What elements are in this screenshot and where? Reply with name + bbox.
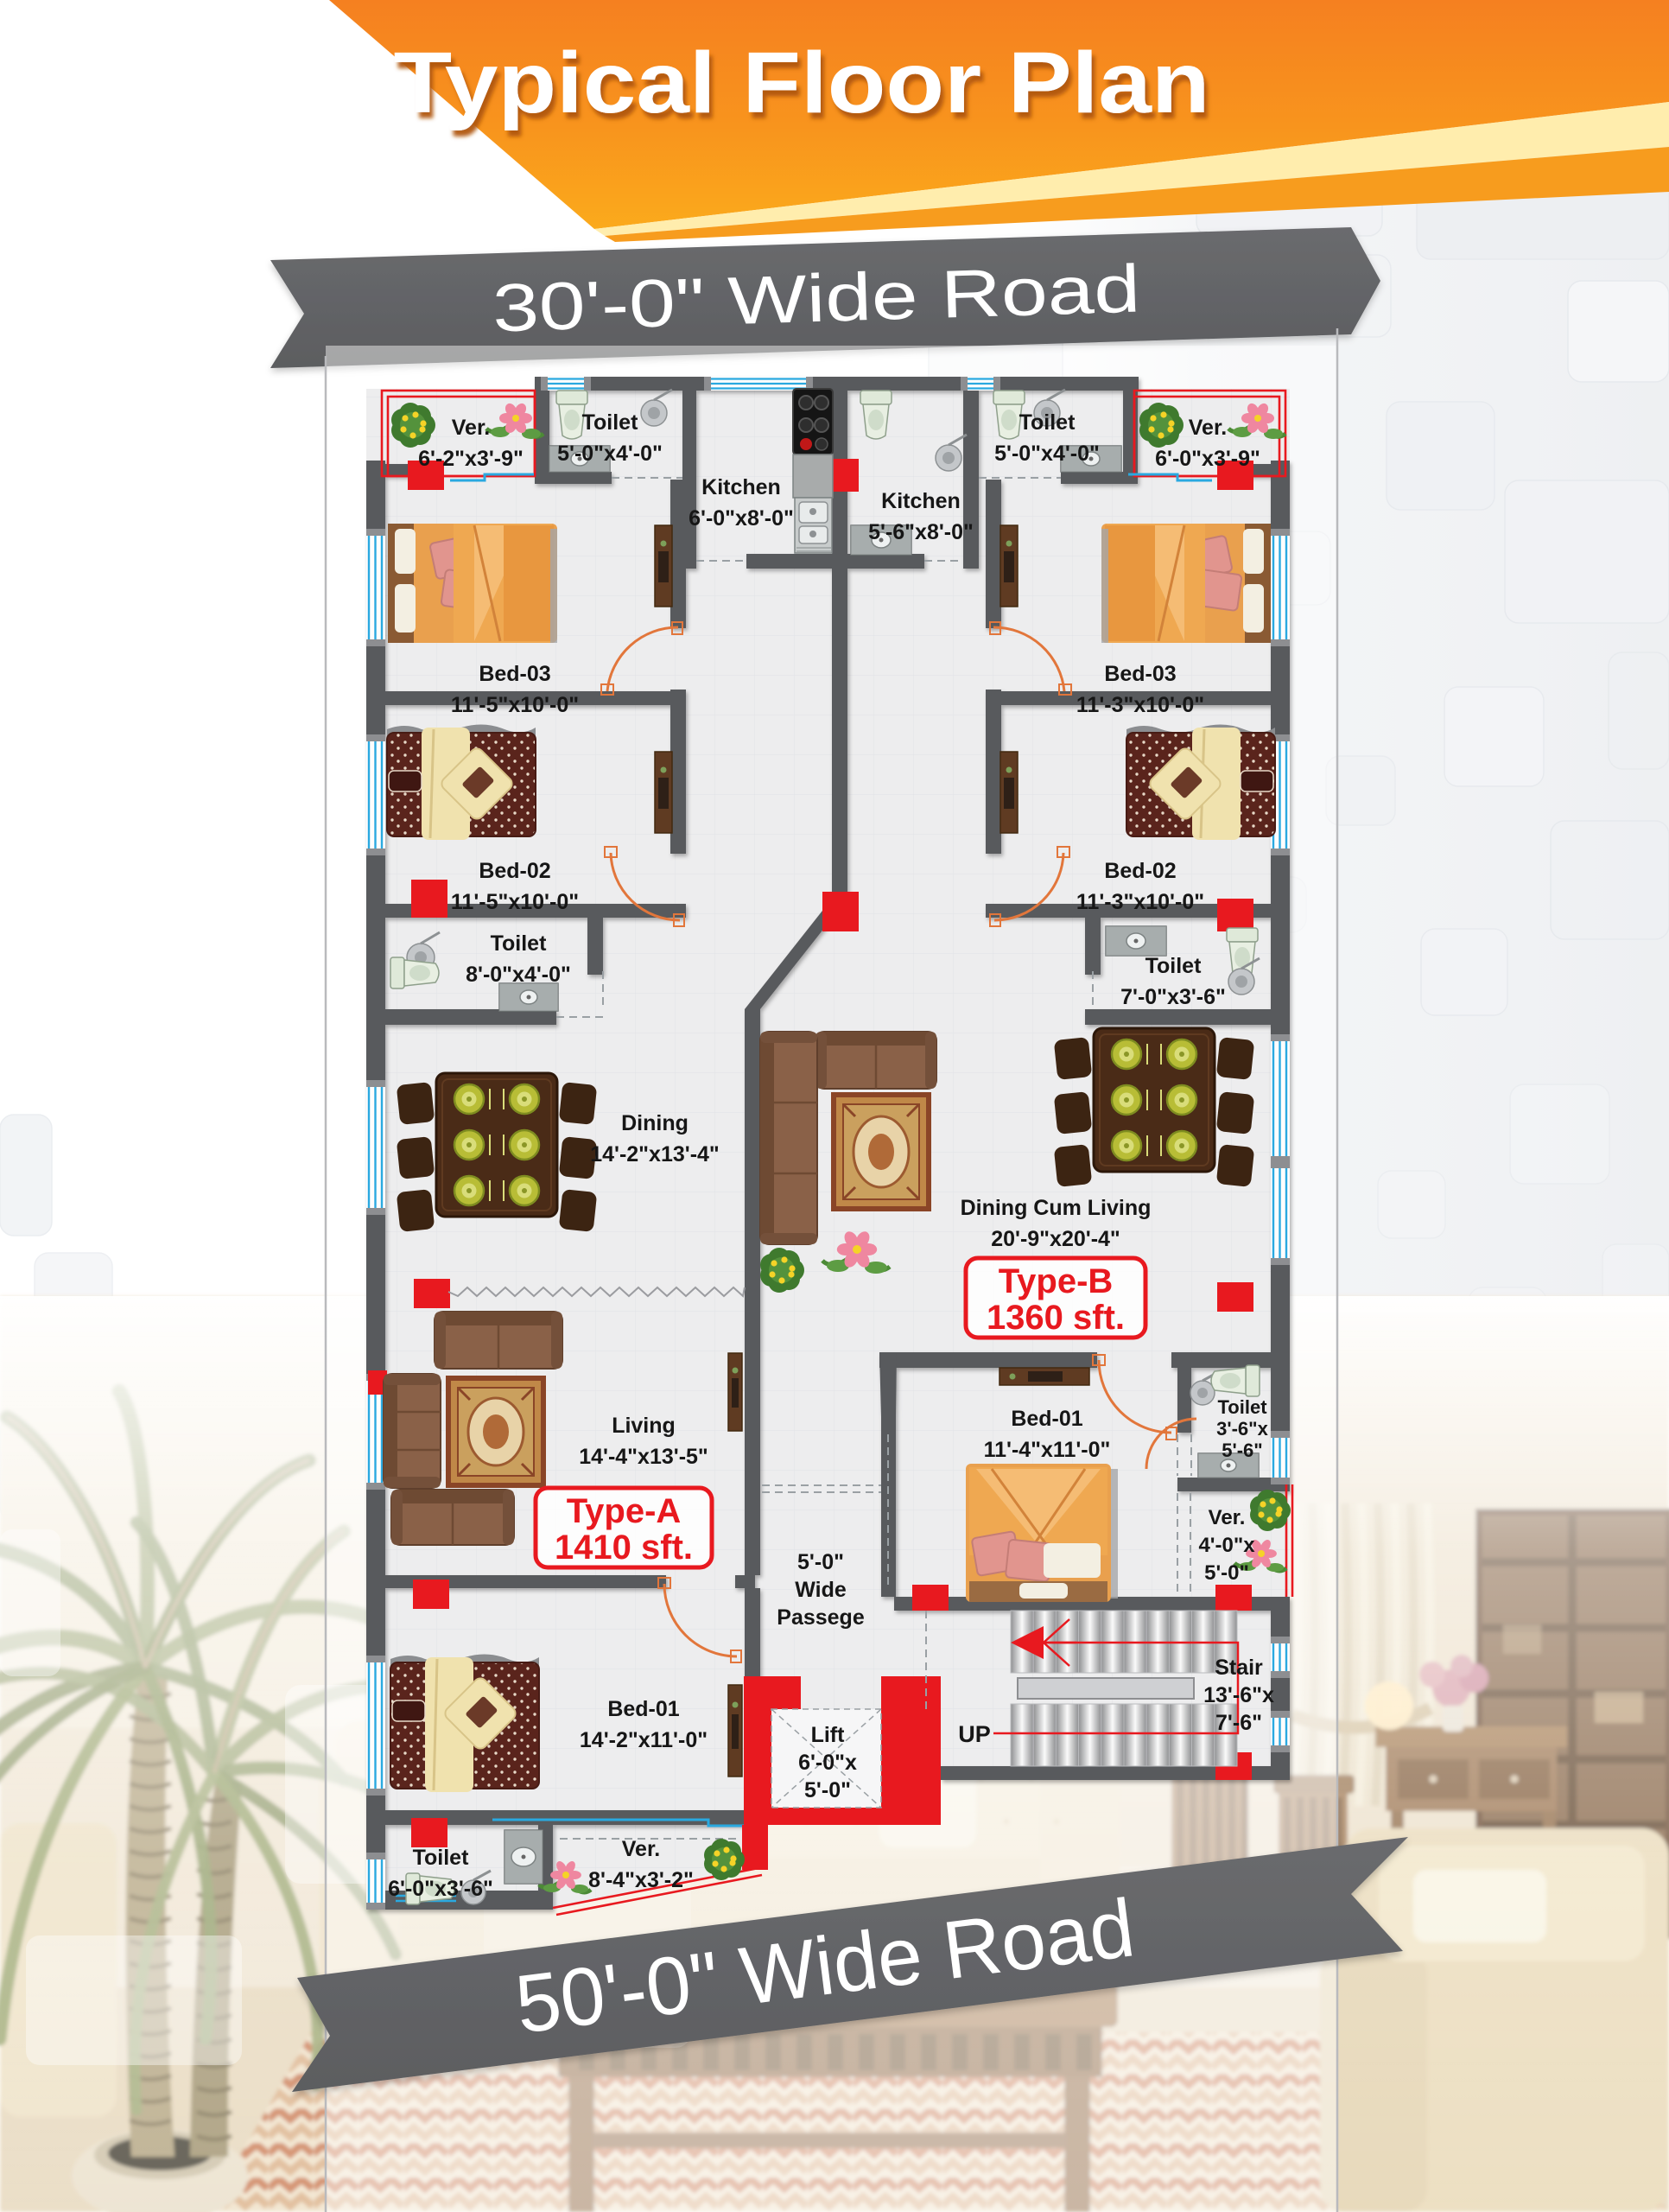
svg-text:5'-6": 5'-6" [1222, 1440, 1262, 1461]
svg-text:5'-0": 5'-0" [1204, 1561, 1249, 1585]
svg-text:5'-0": 5'-0" [797, 1550, 844, 1574]
svg-text:8'-4"x3'-2": 8'-4"x3'-2" [588, 1868, 694, 1892]
svg-text:Toilet: Toilet [1145, 954, 1202, 978]
svg-text:Type-A: Type-A [567, 1492, 682, 1530]
svg-text:6'-0"x3'-6": 6'-0"x3'-6" [388, 1877, 493, 1901]
svg-text:11'-5"x10'-0": 11'-5"x10'-0" [451, 890, 579, 914]
svg-text:11'-3"x10'-0": 11'-3"x10'-0" [1076, 890, 1204, 914]
svg-text:1360 sft.: 1360 sft. [987, 1299, 1125, 1337]
svg-text:7'-0"x3'-6": 7'-0"x3'-6" [1120, 985, 1226, 1009]
svg-text:5'-6"x8'-0": 5'-6"x8'-0" [868, 520, 974, 544]
svg-text:13'-6"x: 13'-6"x [1203, 1683, 1274, 1707]
svg-text:Living: Living [612, 1414, 676, 1438]
svg-text:Toilet: Toilet [413, 1846, 469, 1870]
svg-text:8'-0"x4'-0": 8'-0"x4'-0" [466, 963, 571, 987]
svg-text:Ver.: Ver. [1189, 416, 1228, 440]
svg-text:7'-6": 7'-6" [1215, 1711, 1262, 1735]
svg-text:6'-0"x: 6'-0"x [798, 1751, 857, 1775]
svg-text:Kitchen: Kitchen [881, 489, 961, 513]
svg-text:UP: UP [958, 1721, 991, 1747]
svg-text:Bed-02: Bed-02 [1104, 859, 1176, 883]
svg-text:Ver.: Ver. [1209, 1506, 1246, 1529]
svg-text:Typical Floor Plan: Typical Floor Plan [394, 35, 1210, 131]
svg-text:14'-4"x13'-5": 14'-4"x13'-5" [579, 1445, 708, 1469]
svg-text:3'-6"x: 3'-6"x [1216, 1418, 1268, 1440]
svg-text:Bed-02: Bed-02 [479, 859, 550, 883]
svg-text:6'-0"x8'-0": 6'-0"x8'-0" [689, 506, 794, 531]
svg-text:11'-3"x10'-0": 11'-3"x10'-0" [1076, 693, 1204, 717]
svg-text:Type-B: Type-B [999, 1262, 1114, 1300]
svg-text:20'-9"x20'-4": 20'-9"x20'-4" [991, 1227, 1120, 1251]
svg-text:Dining: Dining [621, 1111, 689, 1135]
svg-text:Ver.: Ver. [622, 1837, 661, 1861]
svg-text:Ver.: Ver. [452, 416, 491, 440]
svg-text:11'-5"x10'-0": 11'-5"x10'-0" [451, 693, 579, 717]
svg-text:14'-2"x13'-4": 14'-2"x13'-4" [590, 1142, 720, 1166]
svg-text:14'-2"x11'-0": 14'-2"x11'-0" [580, 1728, 708, 1752]
svg-text:4'-0"x: 4'-0"x [1198, 1534, 1255, 1557]
svg-text:5'-0": 5'-0" [804, 1778, 851, 1802]
svg-text:Stair: Stair [1215, 1656, 1263, 1680]
svg-text:Kitchen: Kitchen [701, 475, 781, 499]
svg-text:Lift: Lift [811, 1723, 846, 1747]
svg-text:5'-0"x4'-0": 5'-0"x4'-0" [557, 442, 663, 466]
svg-text:Bed-01: Bed-01 [1011, 1407, 1082, 1431]
svg-text:Toilet: Toilet [1217, 1396, 1267, 1418]
svg-text:Wide: Wide [795, 1578, 847, 1602]
svg-text:6'-2"x3'-9": 6'-2"x3'-9" [418, 447, 524, 471]
svg-text:6'-0"x3'-9": 6'-0"x3'-9" [1155, 447, 1260, 471]
svg-text:Dining Cum Living: Dining Cum Living [961, 1196, 1152, 1220]
svg-text:Toilet: Toilet [1019, 410, 1076, 435]
svg-text:Bed-03: Bed-03 [1104, 662, 1176, 686]
svg-text:Bed-01: Bed-01 [607, 1697, 679, 1721]
svg-text:Toilet: Toilet [491, 931, 547, 956]
svg-text:11'-4"x11'-0": 11'-4"x11'-0" [984, 1438, 1111, 1462]
svg-text:Passege: Passege [777, 1605, 865, 1630]
svg-text:Bed-03: Bed-03 [479, 662, 550, 686]
svg-text:5'-0"x4'-0": 5'-0"x4'-0" [994, 442, 1100, 466]
svg-text:1410 sft.: 1410 sft. [555, 1529, 693, 1567]
svg-text:Toilet: Toilet [582, 410, 638, 435]
